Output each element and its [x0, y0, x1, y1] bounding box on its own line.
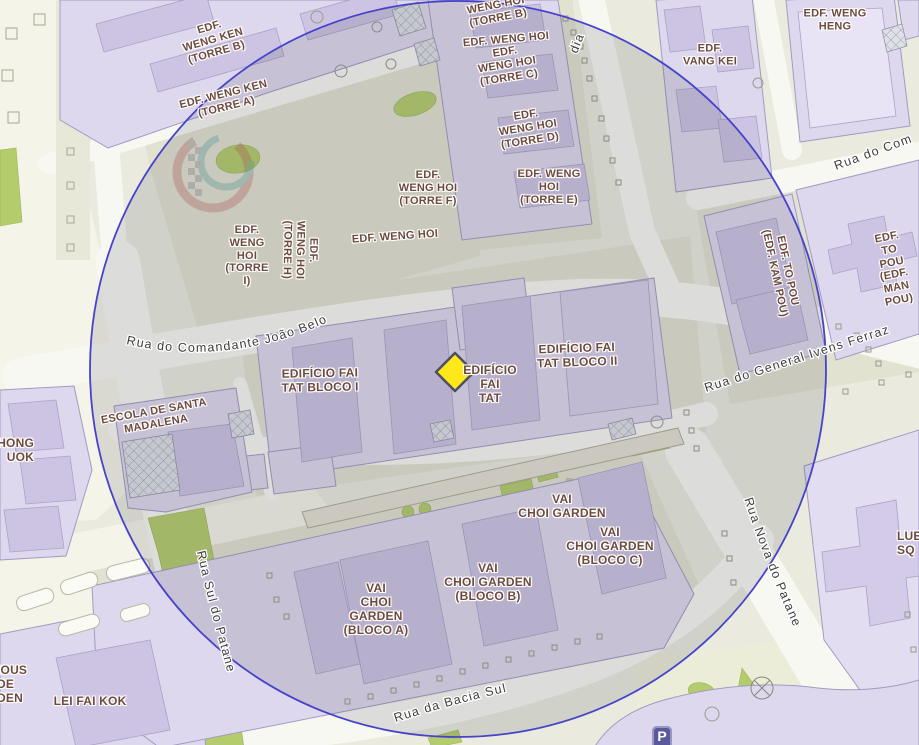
street-label-comandante-joao-belo: Rua do Comandante João Belo: [125, 312, 329, 355]
selected-location-marker[interactable]: [436, 353, 474, 391]
svg-text:Rua Sul do Patane: Rua Sul do Patane: [194, 549, 238, 674]
street-label-sul-do-patane: Rua Sul do Patane: [194, 549, 238, 674]
svg-text:Rua do Comandante João Belo: Rua do Comandante João Belo: [125, 312, 329, 355]
map-annotations: Rua do Comandante João Belo Rua do Gener…: [0, 0, 919, 745]
street-label-nova-do-patane: Rua Nova do Patane: [741, 496, 804, 629]
svg-text:Rua da Bacia Sul: Rua da Bacia Sul: [392, 681, 508, 725]
map-canvas[interactable]: Rua do Comandante João Belo Rua do Gener…: [0, 0, 919, 745]
svg-text:Rua Nova do Patane: Rua Nova do Patane: [741, 496, 804, 629]
svg-text:Rua do General Ivens Ferraz: Rua do General Ivens Ferraz: [703, 322, 892, 395]
street-label-rua-do-com-partial: Rua do Com: [832, 131, 914, 173]
parking-icon: P: [652, 726, 672, 745]
street-label-general-ivens-ferraz: Rua do General Ivens Ferraz: [703, 322, 892, 395]
svg-text:dia: dia: [567, 31, 587, 55]
street-label-bacia-sul: Rua da Bacia Sul: [392, 681, 508, 725]
street-label-dia-partial: dia: [567, 31, 587, 55]
svg-text:Rua do Com: Rua do Com: [832, 131, 914, 173]
